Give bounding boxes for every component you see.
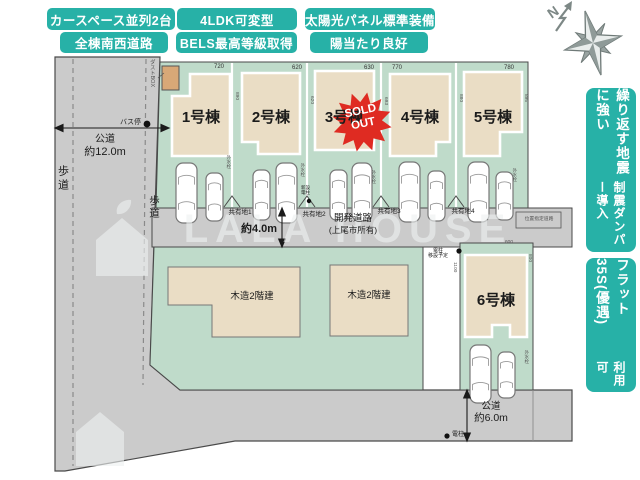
neighbor-buildings (168, 265, 408, 337)
house-5 (464, 72, 522, 156)
soldout-starburst (327, 87, 397, 157)
parked-cars (176, 162, 515, 403)
lot6-area (460, 243, 533, 390)
west-road-type: 公道 (95, 135, 115, 146)
feature-badge-sunlight: 陽当たり良好 (310, 32, 428, 53)
lot3-label: 3号棟 (325, 110, 363, 126)
lot2-frontage: 620 (292, 65, 302, 71)
feature-badge-bels: BELS最高等級取得 (176, 32, 297, 53)
lot2-label: 2号棟 (252, 110, 290, 126)
soldout-badge: SOLDOUT (332, 98, 393, 148)
neighbor-building-2-label: 木造2階建 (347, 291, 390, 301)
new-houses (172, 71, 527, 337)
dust-box-pointer (158, 73, 164, 78)
sidewalk-label-right: 歩道 (148, 195, 159, 220)
soldout-line1: SOLD (344, 102, 378, 120)
flat35s-badge-main: フラット35S(優遇) (591, 258, 631, 358)
outdoor-tap-4: 外水栓 (512, 168, 517, 182)
boundary-chevrons (224, 196, 464, 207)
neighbor-building-1 (168, 267, 300, 337)
soldout-line2: OUT (350, 116, 376, 133)
feature-badge-damper: 繰り返す地震に強い 制震ダンパー導入 (586, 88, 636, 252)
bus-stop-label: バス停 (120, 119, 141, 126)
watermark-logo (76, 200, 148, 466)
lot4-frontage: 770 (392, 65, 402, 71)
south-road-width: 約6.0m (474, 413, 508, 424)
siteplan-flyer: LALA HOUSE 1号棟 2号棟 3号棟 4号棟 5号棟 6号棟 720 6… (0, 0, 640, 480)
lot1-label: 1号棟 (182, 110, 220, 126)
west-south-road-shape (55, 57, 572, 471)
south-pole-label: 電柱 (452, 432, 464, 438)
lower-left-area (150, 247, 423, 390)
side-dim-4: 880 (458, 94, 463, 102)
damper-badge-sub: 制震ダンパー導入 (594, 181, 628, 252)
dimension-arrows (55, 125, 470, 442)
feature-badge-flat35s: フラット35S(優遇) 利用可 (586, 258, 636, 392)
outdoor-tap-5: 外水栓 (524, 350, 529, 364)
east-road-label-box (516, 212, 561, 228)
new-pole-line2: 電柱 (301, 190, 310, 195)
pole-dot-new (307, 199, 311, 203)
feature-badge-carspace: カースペース並列2台 (47, 8, 175, 30)
damper-badge-main: 繰り返す地震に強い (591, 88, 631, 178)
dust-box (162, 66, 179, 90)
north-arrow-head (564, 1, 572, 11)
side-dim-5: 895 (523, 94, 528, 102)
pole-dot-south (444, 433, 449, 438)
compass-north-letter: N (545, 3, 562, 21)
flat35s-badge-sub: 利用可 (594, 361, 628, 392)
lot6-label: 6号棟 (477, 293, 515, 309)
house-3 (315, 71, 374, 150)
south-road-type: 公道 (481, 402, 500, 412)
lot6-dim-right: 800 (527, 254, 532, 262)
west-road-width: 約12.0m (84, 147, 126, 159)
lot5-label: 5号棟 (474, 110, 512, 126)
dust-box-label: ダストBOX (148, 59, 154, 87)
neighbor-building-2 (330, 265, 408, 336)
lot5-frontage: 780 (504, 65, 514, 71)
feature-badge-4ldk: 4LDK可変型 (177, 8, 297, 30)
car-icon (498, 352, 515, 398)
new-pole-label: 新設電柱 (301, 186, 310, 195)
house-1 (172, 74, 230, 156)
outdoor-tap-1: 外水栓 (226, 155, 231, 169)
feature-badge-solar: 太陽光パネル標準装備 (305, 8, 435, 30)
side-dim-2: 620 (309, 96, 314, 104)
lot6-dim-left: 1100 (452, 262, 457, 272)
compass-rose-icon (556, 4, 631, 83)
side-dim-3: 693 (383, 97, 388, 105)
bus-stop-dot (144, 121, 151, 128)
lot4-label: 4号棟 (401, 110, 439, 126)
outdoor-tap-2: 外水栓 (300, 163, 305, 177)
lot3-frontage: 630 (364, 65, 374, 71)
neighbor-building-1-label: 木造2階建 (230, 292, 273, 302)
side-dim-1: 890 (234, 92, 239, 100)
east-road-label: 位置指定道路 (525, 217, 554, 222)
house-2 (242, 73, 300, 154)
pole-relocate-line2: 移設予定 (428, 253, 448, 259)
lot1-frontage: 720 (214, 64, 224, 70)
house-6 (465, 255, 527, 337)
sidewalk-line-right (143, 59, 146, 385)
outdoor-tap-3: 外水栓 (371, 170, 376, 184)
watermark-text: LALA HOUSE (184, 207, 513, 252)
lot-dividers (232, 63, 456, 207)
feature-badge-southwest-road: 全棟南西道路 (60, 32, 168, 53)
new-pole-line1: 新設 (301, 185, 310, 190)
car-icon (470, 345, 491, 403)
upper-lots-area (156, 62, 528, 208)
house-4 (390, 74, 450, 156)
sidewalk-label-left: 歩道 (56, 165, 68, 193)
